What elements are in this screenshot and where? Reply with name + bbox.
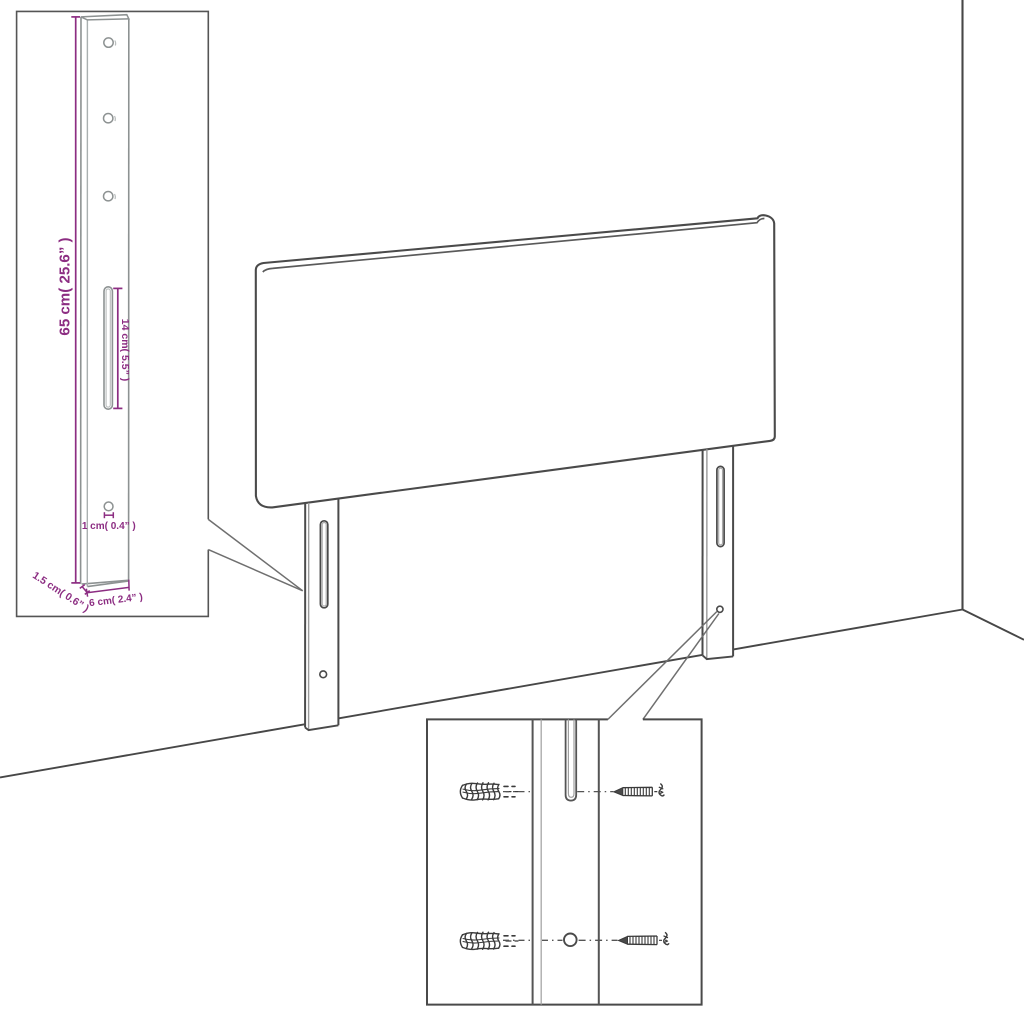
svg-text:1 cm( 0.4” ): 1 cm( 0.4” ) <box>82 521 136 532</box>
svg-text:14 cm( 5.5” ): 14 cm( 5.5” ) <box>119 319 131 381</box>
svg-text:65 cm( 25.6” ): 65 cm( 25.6” ) <box>56 237 73 335</box>
